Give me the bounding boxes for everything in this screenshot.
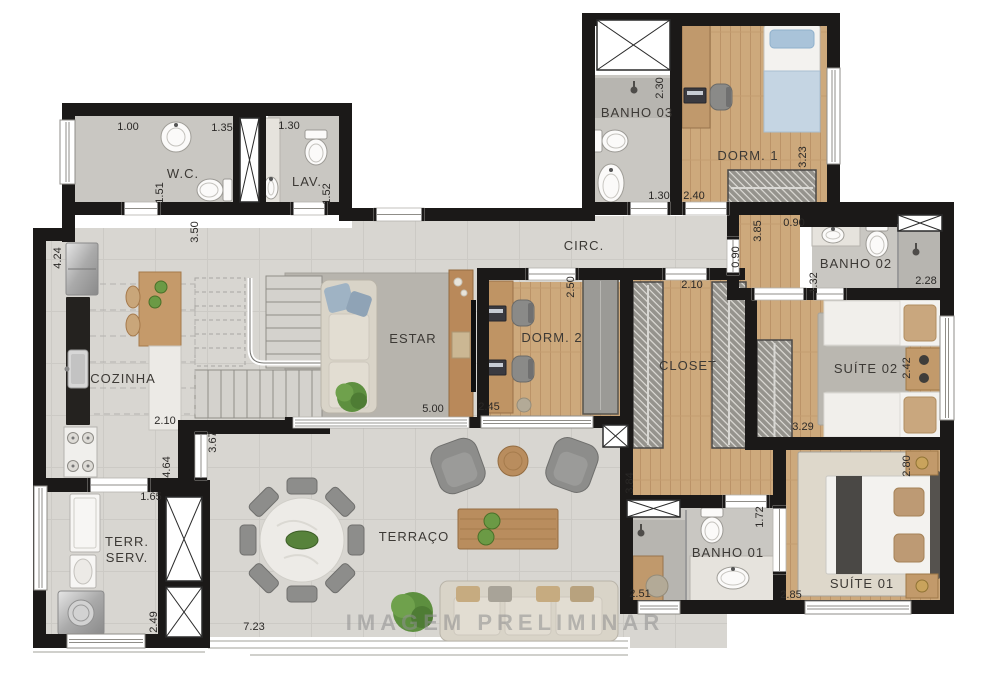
bed-runner (836, 476, 862, 574)
window-frame (805, 601, 911, 614)
chair-back (528, 359, 533, 379)
wall-segment (469, 417, 477, 428)
door-jamb (291, 202, 294, 215)
door-jamb (727, 202, 730, 215)
sink-ped-icon (598, 164, 624, 202)
sink-round-icon (161, 122, 191, 152)
wardrobe-hatch-icon (712, 282, 746, 448)
faucet (174, 123, 178, 127)
door-jamb (374, 208, 377, 221)
room-label-banho-01: BANHO 01 (692, 545, 764, 560)
laptop-screen (489, 309, 503, 313)
door-jamb (707, 268, 710, 280)
dining-chair (287, 478, 317, 494)
dimension-label: 1.72 (754, 506, 766, 527)
door-jamb (727, 273, 739, 276)
window-frame (940, 316, 954, 420)
room-label-lav: LAV. (292, 174, 322, 189)
door-jamb (804, 288, 807, 300)
wall-segment (940, 450, 954, 614)
door-jamb (122, 202, 125, 215)
room-label-banho-03: BANHO 03 (601, 105, 673, 120)
room-label-estar: ESTAR (389, 331, 436, 346)
dimension-label: 3.67 (207, 431, 219, 452)
chair-back (726, 87, 731, 107)
tank-icon (70, 494, 100, 552)
dimension-label: 2.28 (915, 275, 936, 287)
window-frame (34, 486, 47, 590)
faucet (831, 227, 835, 231)
stove-icon (64, 427, 97, 477)
door-jamb (422, 208, 425, 221)
duvet (824, 301, 900, 345)
dining-table-icon (260, 498, 344, 582)
laptop-screen (687, 91, 703, 95)
burner-center (72, 437, 75, 440)
dimension-label: 1.51 (154, 182, 166, 203)
window-frame (481, 416, 593, 428)
dimension-label: 2.49 (148, 611, 160, 632)
toilet-icon (305, 130, 327, 165)
pillow (904, 305, 936, 341)
dimension-label: 1.30 (648, 190, 669, 202)
chair-back (528, 303, 533, 323)
lamp (919, 373, 929, 383)
decor (454, 278, 462, 286)
toilet-tank (701, 508, 723, 517)
dimension-label: 1.65 (140, 491, 161, 503)
basin (74, 559, 92, 584)
dimension-label: 3.50 (189, 221, 201, 242)
toilet-bowl (866, 231, 888, 257)
plate-icon (484, 513, 500, 529)
lamp (919, 355, 929, 365)
tv-screen (471, 300, 476, 392)
door-jamb (526, 268, 529, 280)
door-jamb (668, 202, 671, 215)
dimension-label: 5.00 (422, 403, 443, 415)
room-label-terraco: TERRAÇO (379, 529, 450, 544)
stool-icon (126, 286, 140, 308)
dimension-label: 2.10 (681, 279, 702, 291)
dimension-label: 1.52 (321, 183, 333, 204)
dining-chair (287, 586, 317, 602)
wood-shape (682, 25, 710, 128)
toilet-bowl (701, 517, 723, 543)
room-label-suite-01: SUÍTE 01 (830, 576, 894, 591)
room-label-closet: CLOSET (659, 358, 717, 373)
pouf-shape (517, 398, 531, 412)
tv-rack-icon (449, 270, 473, 417)
lamp (916, 457, 928, 469)
faucet (731, 567, 735, 571)
dimension-label: 3.85 (752, 220, 764, 241)
stool-seat (126, 314, 140, 336)
dimension-label: 3.84 (624, 472, 636, 493)
toilet-icon (866, 222, 888, 257)
door-jamb (727, 237, 739, 240)
balcony-slab (33, 648, 208, 664)
cushion (329, 314, 369, 360)
watermark-text: IMAGEM PRELIMINAR (346, 610, 664, 635)
floor-plan-canvas: W.C.LAV.BANHO 03DORM. 1CIRC.BANHO 02SUÍT… (0, 0, 1000, 695)
bed-single-v-icon (764, 25, 820, 132)
dimension-label: 3.29 (792, 421, 813, 433)
door-jamb (683, 202, 686, 215)
sink-steel-icon (65, 350, 89, 388)
stool-icon (126, 314, 140, 336)
washer-icon (58, 591, 104, 635)
dimension-label: 2.42 (901, 357, 913, 378)
table-top (498, 446, 528, 476)
door-jamb (844, 288, 847, 300)
sink-oval-icon (264, 177, 278, 199)
room-label-dorm-2: DORM. 2 (521, 330, 582, 345)
throw-pillow (536, 586, 560, 602)
wall-segment (62, 103, 352, 116)
dimension-label: 2.85 (780, 589, 801, 601)
dimension-label: 2.51 (629, 588, 650, 600)
dimension-label: 4.64 (161, 456, 173, 477)
wall-segment (178, 430, 195, 482)
pillow (894, 488, 924, 516)
window-frame (827, 68, 840, 164)
bed-double-icon (826, 471, 940, 579)
sink-small-icon (70, 555, 96, 588)
dimension-label: 2.40 (683, 190, 704, 202)
door-jamb (773, 506, 786, 509)
floor-plan: W.C.LAV.BANHO 03DORM. 1CIRC.BANHO 02SUÍT… (0, 0, 1000, 695)
plate-icon (478, 529, 494, 545)
toilet-icon (593, 130, 628, 152)
room-label-cozinha: COZINHA (90, 371, 156, 386)
dimension-label: 1.32 (808, 272, 820, 293)
room-label-terr-serv: TERR.SERV. (105, 534, 149, 565)
room-label-banho-02: BANHO 02 (820, 256, 892, 271)
tv-icon (471, 300, 476, 392)
office-chair-icon (512, 356, 534, 382)
room-label-wc: W.C. (167, 166, 199, 181)
headboard (930, 471, 940, 579)
shower-rose (631, 87, 638, 94)
dimension-label: 0.90 (730, 246, 742, 267)
plate-icon (149, 296, 161, 308)
washer-drum (68, 600, 94, 626)
window-frame (67, 634, 145, 648)
laptop-body (684, 88, 706, 103)
blanket (764, 71, 820, 132)
plant-pot (149, 296, 161, 308)
burner-center (87, 465, 90, 468)
sink-oval-icon (822, 227, 844, 243)
wardrobe-flat-icon (583, 277, 618, 414)
room-label-dorm-1: DORM. 1 (717, 148, 778, 163)
pillow (894, 534, 924, 562)
shower-rose (638, 530, 645, 537)
wall-segment (582, 13, 595, 215)
duvet (824, 393, 900, 437)
bed-single-h-icon (824, 392, 942, 438)
faucet (269, 177, 273, 181)
wall-segment (727, 288, 752, 300)
toilet-tank (223, 179, 232, 201)
sliding-door (293, 417, 469, 428)
office-chair-icon (512, 300, 534, 326)
wall-segment (757, 437, 954, 450)
sink-bowl-inner (71, 354, 85, 384)
door-jamb (663, 268, 666, 280)
throw-pillow (570, 586, 594, 602)
throw-pillow (488, 586, 512, 602)
dimension-label: 2.50 (565, 276, 577, 297)
laptop-screen (489, 363, 503, 367)
wardrobe-hatch-icon (728, 170, 816, 206)
side-table-icon (498, 446, 528, 476)
dimension-label: 2.80 (901, 455, 913, 476)
burner-center (72, 465, 75, 468)
stair-flight (195, 370, 322, 418)
door-jamb (195, 432, 207, 435)
plant-pot (155, 281, 167, 293)
door-jamb (767, 495, 770, 508)
laptop-icon (684, 88, 706, 103)
plate-icon (155, 281, 167, 293)
centerpiece (286, 531, 318, 549)
pouf-icon (517, 398, 531, 412)
dining-chair (348, 525, 364, 555)
bed-single-h-icon (824, 300, 942, 346)
door-jamb (752, 288, 755, 300)
lamp (916, 580, 928, 592)
wall-segment (745, 300, 757, 450)
dimension-label: 2.10 (154, 415, 175, 427)
toilet-bowl (305, 139, 327, 165)
faucet (609, 168, 613, 172)
shower-rose (913, 249, 920, 256)
pillow (904, 397, 936, 433)
room-label-suite-02: SUÍTE 02 (834, 361, 898, 376)
nightstand-icon (906, 574, 938, 598)
door-jamb (88, 478, 91, 492)
fridge-icon (66, 243, 98, 295)
dimension-label: 2.45 (478, 401, 499, 413)
decor (461, 290, 467, 296)
plant-pot (478, 529, 494, 545)
wall-segment (285, 417, 293, 428)
tray (452, 332, 470, 358)
burner-center (87, 437, 90, 440)
pillow (770, 30, 814, 48)
door-jamb (628, 202, 631, 215)
throw-pillow (456, 586, 480, 602)
faucet (65, 367, 70, 372)
floor-wood (633, 447, 773, 500)
window-frame (60, 120, 75, 184)
dimension-label: 7.23 (243, 621, 264, 633)
dimension-label: 1.30 (278, 120, 299, 132)
wardrobe-wood-icon (682, 25, 710, 128)
wardrobe-hatch-icon (757, 340, 792, 440)
plant-pot (484, 513, 500, 529)
room-label-circ: CIRC. (564, 238, 604, 253)
dimension-label: 0.90 (783, 217, 804, 229)
dimension-label: 3.23 (797, 146, 809, 167)
stool-seat (126, 286, 140, 308)
foliage (351, 393, 368, 410)
dimension-label: 2.30 (654, 77, 666, 98)
door-jamb (148, 478, 151, 492)
door-jamb (195, 478, 207, 481)
office-chair-icon (710, 84, 732, 110)
toilet-icon (701, 508, 723, 543)
dining-chair (240, 525, 256, 555)
toilet-tank (305, 130, 327, 139)
door-jamb (723, 495, 726, 508)
dimension-label: 1.35 (211, 122, 232, 134)
coffee-table-icon (458, 509, 558, 549)
wall-segment (339, 103, 352, 221)
door-jamb (773, 572, 786, 575)
toilet-bowl (197, 179, 223, 201)
toilet-icon (197, 179, 232, 201)
dimension-label: 1.00 (117, 121, 138, 133)
dimension-label: 4.24 (52, 247, 64, 268)
sink-oval-icon (717, 567, 749, 589)
toilet-bowl (602, 130, 628, 152)
